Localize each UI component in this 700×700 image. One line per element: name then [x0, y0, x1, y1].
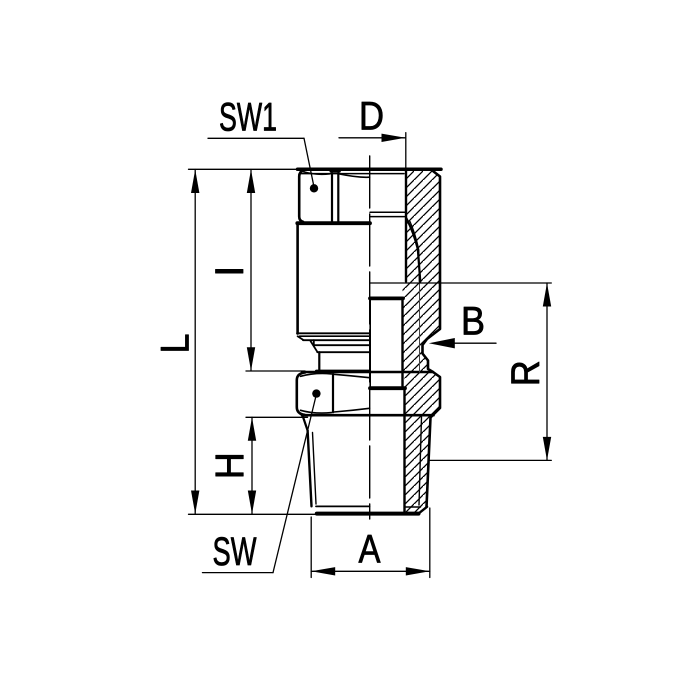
svg-text:SW: SW — [213, 530, 257, 574]
svg-text:B: B — [461, 300, 485, 344]
svg-text:L: L — [154, 334, 198, 354]
svg-text:A: A — [359, 528, 381, 572]
svg-text:R: R — [504, 360, 548, 386]
svg-text:D: D — [359, 95, 384, 139]
svg-text:SW1: SW1 — [219, 96, 277, 140]
svg-text:H: H — [208, 452, 252, 479]
svg-text:I: I — [208, 266, 252, 277]
